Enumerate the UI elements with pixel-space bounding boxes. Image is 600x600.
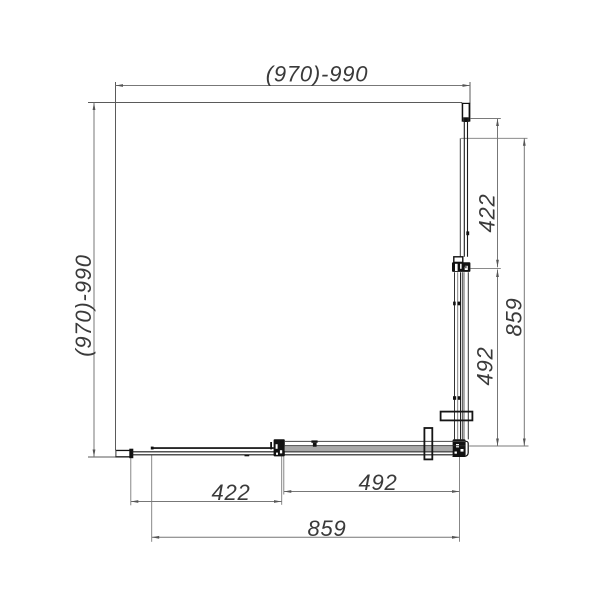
svg-text:422: 422 — [475, 193, 500, 232]
svg-text:(970)-990: (970)-990 — [71, 254, 96, 357]
svg-text:(970)-990: (970)-990 — [266, 62, 369, 87]
svg-text:492: 492 — [358, 470, 397, 495]
svg-text:859: 859 — [307, 516, 346, 541]
svg-text:492: 492 — [473, 346, 498, 385]
svg-text:859: 859 — [502, 297, 527, 336]
svg-text:422: 422 — [211, 480, 250, 505]
